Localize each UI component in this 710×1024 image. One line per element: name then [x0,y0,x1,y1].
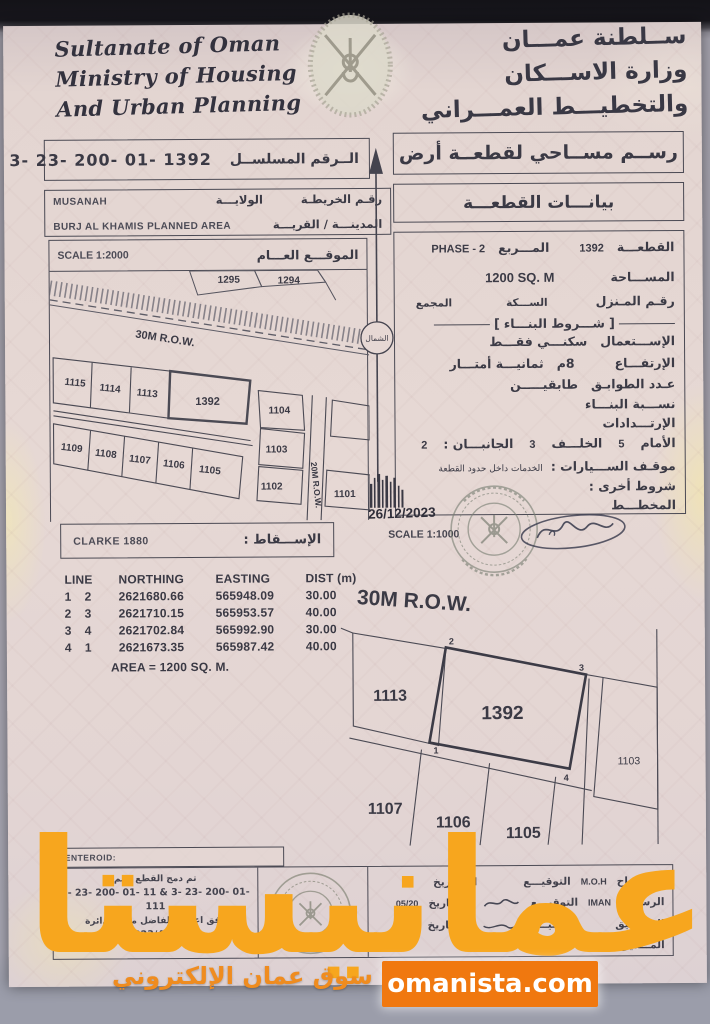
bottom-official-stamp [258,867,363,960]
merge-note-line1: تم دمج القطع رقم [57,872,253,887]
table-header-row: LINE NORTHING EASTING DIST (m) [64,570,361,589]
front-label: الأمام [640,435,675,450]
signature-rows-cell: المســـاح M.O.H التوقيـــع التـــاريخ ال… [371,867,669,955]
audit-row: التـــدقيق التوقيـــع التـــاريخ [374,918,665,932]
plot-number-value: 1392 [579,242,604,254]
plot-label-1392: 1392 [195,396,220,408]
plot-divider [90,363,92,408]
ministry-title-arabic: ســلطنة عمـــان وزارة الاســـكان والتخطي… [386,19,689,129]
omanista-badge: omanista.com [382,961,598,1007]
other-conditions-label: شروط أخرى : [589,478,676,494]
cell: 1 [85,639,119,656]
overview-map-svg: 1295 1294 1115 1114 1113 1392 1104 1109 … [50,270,371,522]
coordinate-table: LINE NORTHING EASTING DIST (m) 122621680… [64,570,362,675]
wilaya-value: MUSANAH [53,197,107,208]
area-row: المســـاحة 1200 SQ. M [401,269,675,286]
signature-scribble [482,897,520,909]
cell: 3 [65,623,85,640]
plot-label-1113: 1113 [136,387,159,400]
detail-row-30m-label: 30M R.O.W. [356,586,472,616]
road-edge [306,395,313,520]
usage-row: الإســـتعمال سكنـــي فقـــط [401,333,675,350]
location-box: MUSANAH الولايـــة رقـم الخريطـة BURJ AL… [44,188,391,237]
draftsman-label: الرســـم [621,896,664,908]
parking-label: موقـف الســـيارات : [551,458,676,474]
north-arrowhead-icon [369,148,383,174]
detail-label-1113: 1113 [373,688,407,705]
plot-label-1104: 1104 [268,405,290,416]
plot-label-1106: 1106 [162,458,185,471]
sides-value: 2 [421,440,427,452]
setback-values-row: الأمام 5 الخلـــف 3 الجانبـــان : 2 [402,435,676,452]
plot-label-1294: 1294 [278,275,301,286]
square-label: المـــربع [498,240,549,255]
map-right-border [657,629,658,844]
wilaya-row: MUSANAH الولايـــة رقـم الخريطـة [53,192,382,208]
draftsman-row: الرســـم IMAN التوقيـــع التـــاريخ 05/2… [373,896,664,910]
building-conditions-title: شـــروط البنـــاء [504,315,605,331]
house-row: رقـم المـنزل الســـكة المجمع [401,293,675,310]
draftsman-value: IMAN [588,897,611,907]
date-label: التـــاريخ [428,897,472,909]
plot-data-title-box: بيانـــات القطعـــة [393,182,684,223]
cell: 2621673.35 [119,639,216,657]
cell: 3 [85,605,119,622]
row-20m-label: 20M R.O.W. [309,461,324,508]
ministry-title-english: Sultanate of Oman Ministry of Housing An… [54,27,316,124]
cell: 2621680.66 [119,588,216,606]
general-site-label: الموقـــع العـــام [257,246,359,262]
centeroid-label: CENTEROID: [58,852,116,862]
height-words: ثمانيـــة أمتـــار [450,356,544,372]
plot-divider [480,763,491,845]
overview-scale-strip: SCALE 1:2000 الموقـــع العـــام [48,238,367,272]
plot-label-1114: 1114 [99,383,122,396]
setbacks-row: الإرتـــدادات [401,415,675,432]
floors-value: طابقيـــــن [510,377,578,392]
road-hatching [50,286,369,340]
surveyor-value: M.O.H [581,876,607,886]
corner-label-3: 3 [579,663,584,673]
projection-box: CLARKE 1880 الإســـقاط : [60,522,334,559]
merge-note-line2: 3- 23- 200- 01- 11 & 3- 23- 200- 01- 111 [57,886,253,915]
setbacks-label: الإرتـــدادات [602,415,675,430]
photo-of-survey-document: { "header": { "en_line1": "Sultanate of … [0,0,710,1024]
detail-map: 30M R.O.W. 1113 1392 1103 1107 1106 [340,574,672,846]
wilaya-label: الولايـــة [216,193,263,207]
detail-label-1107: 1107 [368,801,403,818]
street-label: الســـكة [506,297,548,309]
signature-label: التوقيـــع [530,897,578,909]
usage-value: سكنـــي فقـــط [489,334,587,350]
detail-map-svg: 30M R.O.W. 1113 1392 1103 1107 1106 [340,574,672,846]
plot-label-1107: 1107 [128,453,151,466]
date-stamp-group: 26/12/2023 [368,474,436,521]
cell: 4 [85,622,119,639]
road-edge [53,410,250,442]
projection-value: CLARKE 1880 [73,535,149,547]
detail-label-1106: 1106 [436,814,471,831]
cell: 565987.42 [216,638,306,656]
detail-label-1105: 1105 [506,825,541,842]
serial-number-box: الــرقم المسلســل 3- 23- 200- 01- 1392 [44,138,370,181]
front-value: 5 [618,438,624,450]
detail-label-1103: 1103 [618,755,641,767]
col-line: LINE [64,571,118,588]
back-label: الخلـــف [551,435,602,450]
area-value: 1200 SQ. M [485,270,554,285]
plot-label-1102: 1102 [261,481,283,492]
boundary-line [586,674,603,677]
merge-note-cell: تم دمج القطع رقم 3- 23- 200- 01- 11 & 3-… [57,872,253,943]
detail-label-1392: 1392 [481,703,523,724]
director-row: المـــدير [374,939,665,953]
plot-divider [548,777,556,845]
height-meters: 8م [557,356,575,371]
title-ar-line3: والتخطيـــط العمـــراني [388,87,689,129]
corner-label-4: 4 [564,773,569,783]
signature-label: التوقيـــع [523,876,571,888]
audit-label: التـــدقيق [615,918,664,930]
scanned-survey-document-page: Sultanate of Oman Ministry of Housing An… [3,22,707,987]
road-edge [53,415,252,447]
house-number-label: رقـم المـنزل [596,293,675,308]
plot-outline [318,270,336,300]
usage-label: الإســـتعمال [600,333,675,348]
back-value: 3 [529,439,535,451]
cell: 4 [65,640,85,657]
barcode-icon [368,474,408,508]
cell-divider [367,867,369,957]
survey-title-box: رســم مســاحي لقطعــة أرض [393,131,684,175]
merge-note-line3: وفق اعتماد الفاضل مدير الدائرة [58,914,254,929]
planner-signature [511,504,635,561]
floors-row: عـدد الطوابـق طابقيـــــن [401,376,675,393]
complex-label: المجمع [416,297,452,309]
plot-label-1105: 1105 [198,464,221,477]
date-label: التـــاريخ [433,876,477,888]
date-label: التـــاريخ [428,919,472,931]
height-label: الإرتفـــاع [615,355,676,370]
row-30m-label: 30M R.O.W. [135,328,196,349]
plot-1103-outline [593,677,658,809]
signature-scribble [482,919,520,931]
cell: 565953.57 [216,604,306,622]
omanista-tagline: سوق عمان الإلكتروني [112,962,373,990]
plot-label-1103: 1103 [266,444,288,455]
table-row: 122621680.66565948.0930.00 [65,587,362,606]
surveyor-label: المســـاح [617,875,665,887]
cell: 565948.09 [216,587,306,605]
projection-label: الإســـقاط : [243,532,321,547]
area-note: AREA = 1200 SQ. M. [111,659,362,675]
surveyor-row: المســـاح M.O.H التوقيـــع التـــاريخ [373,875,664,889]
plot-divider [122,436,125,476]
plot-divider [409,750,422,846]
director-label: المـــدير [623,939,665,951]
cell: 1 [65,589,85,606]
plot-divider [129,367,131,412]
north-label: الشمال [365,334,388,343]
plot-label-1109: 1109 [60,442,83,455]
floors-label: عـدد الطوابـق [591,376,675,392]
sides-label: الجانبـــان : [443,436,513,451]
signature-section: تم دمج القطع رقم 3- 23- 200- 01- 11 & 3-… [52,864,674,960]
signature-label: التوقيـــع [530,919,578,931]
serial-number-label: الــرقم المسلســل [230,150,359,167]
cell: 2621702.84 [119,622,216,640]
area-label: المســـاحة [610,269,674,284]
north-arrow: الشمال [356,146,398,498]
col-northing: NORTHING [118,571,215,589]
city-row: BURJ AL KHAMIS PLANNED AREA المدينـــة /… [53,217,382,233]
draftsman-date-value: 05/20 [396,899,419,909]
serial-number-value: 3- 23- 200- 01- 1392 [9,150,212,170]
plot-divider [156,442,159,483]
plot-label-1115: 1115 [64,377,87,390]
plot-label-1108: 1108 [94,448,117,461]
overview-map: 1295 1294 1115 1114 1113 1392 1104 1109 … [49,270,370,522]
ratio-row: نســـبة البنـــاء [401,396,675,413]
stamp-date-value: 26/12/2023 [368,505,436,522]
plot-divider [88,431,91,471]
road-centerline [50,298,369,352]
stamp-emblem-icon [299,901,321,925]
stamp-emblem-icon [481,515,507,543]
table-row: 412621673.35565987.4240.00 [65,638,362,657]
building-conditions-header: [ شـــروط البنـــاء ] [401,315,675,333]
building-ratio-label: نســـبة البنـــاء [585,396,675,412]
plot-label: القطعـــة [617,239,675,254]
overview-scale-label: SCALE 1:2000 [57,249,128,261]
road-edge [581,679,590,845]
cell: 2621710.15 [119,605,216,623]
merge-note-line4: (2023/4476) [123,928,188,942]
boundary-line [341,628,353,633]
table-row: 232621710.15565953.5740.00 [65,604,362,623]
corner-label-1: 1 [433,745,438,755]
cell: 2 [85,588,119,605]
cell: 2 [65,606,85,623]
corner-label-2: 2 [449,636,454,646]
height-row: الإرتفـــاع 8م ثمانيـــة أمتـــار [401,355,675,372]
centeroid-strip: CENTEROID: [52,846,284,867]
col-easting: EASTING [215,570,305,588]
plot-row: القطعـــة 1392 المـــربع PHASE - 2 [400,239,674,256]
square-value: PHASE - 2 [431,243,485,255]
table-row: 342621702.84565992.9030.00 [65,621,362,640]
cell: 565992.90 [216,621,306,639]
oman-national-emblem-icon [303,10,398,121]
title-en-line3: And Urban Planning [56,87,317,124]
plot-label-1295: 1295 [218,275,241,286]
plot-label-1101: 1101 [334,489,356,500]
plot-divider [190,448,193,490]
city-value: BURJ AL KHAMIS PLANNED AREA [53,221,231,233]
